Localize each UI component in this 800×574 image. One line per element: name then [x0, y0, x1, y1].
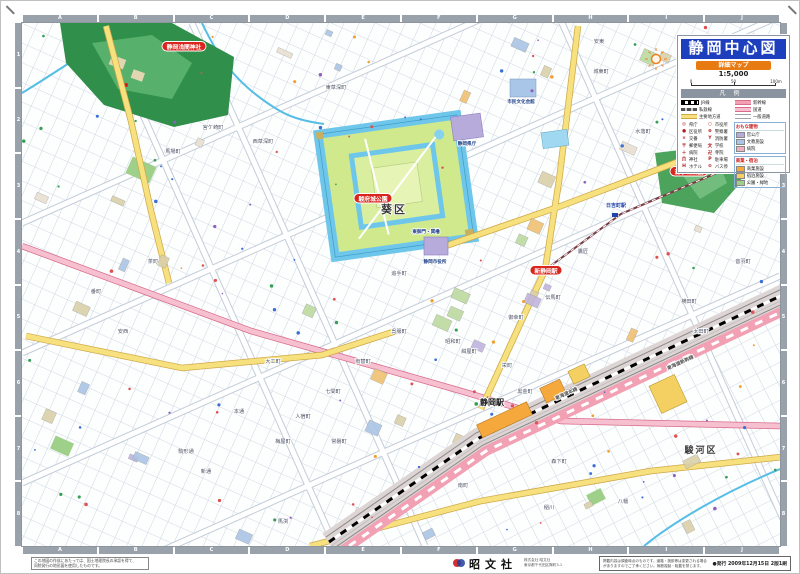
legend-symbol-label: 寺院 — [715, 150, 724, 156]
svg-text:静岡浅間神社: 静岡浅間神社 — [167, 43, 202, 51]
legend-symbol-item: 文学校 — [707, 143, 731, 149]
poi-dot-icon — [410, 383, 413, 386]
map-canvas: 呉服町紺屋町御幸町伝馬町鷹匠両替町七間町人宿町梅屋町常磐町駒形通本通新通大工町安… — [22, 23, 780, 546]
grid-col-label: B — [99, 15, 173, 22]
poi-dot-icon — [725, 476, 728, 479]
poi-dot-icon — [96, 115, 99, 118]
legend-area-item: 商業施設 — [736, 166, 784, 172]
grid-row-label: 1 — [15, 23, 22, 87]
legend-symbol-label: 学校 — [715, 143, 724, 149]
grid-strip-left: 12345678 — [15, 23, 22, 546]
poi-dot-icon — [319, 73, 322, 76]
town-name-label: 紺屋町 — [461, 347, 477, 355]
grid-strip-top: ABCDEFGHIJ — [23, 15, 779, 22]
scale-bar: 0 50 100m — [691, 79, 776, 88]
poi-dot-icon — [79, 426, 82, 429]
town-name-label: 本通 — [234, 407, 245, 415]
legend-symbol-icon: ◎ — [681, 122, 687, 127]
poi-dot-icon — [273, 308, 276, 311]
legend-symbol-item: ○市役所 — [707, 122, 731, 128]
city-pool — [541, 129, 569, 148]
poi-dot-icon — [160, 165, 162, 167]
grid-col-label: B — [99, 547, 173, 554]
grid-row-label: 8 — [780, 482, 787, 546]
grid-col-label: E — [326, 15, 400, 22]
legend-symbol-label: 市役所 — [715, 122, 728, 128]
poi-dot-icon — [522, 300, 525, 303]
legend-symbol-item: 〒郵便局 — [681, 143, 705, 149]
grid-row-label: 6 — [780, 351, 787, 415]
legend-symbol-label: 郵便局 — [689, 143, 702, 149]
grid-col-label: A — [23, 15, 97, 22]
town-name-label: 伝馬町 — [545, 293, 561, 301]
town-name-label: 大工町 — [265, 357, 281, 365]
poi-dot-icon — [34, 449, 36, 451]
poi-dot-icon — [57, 185, 59, 187]
town-name-label: 馬渕 — [278, 517, 288, 525]
publisher-name: 昭文社 — [469, 556, 517, 572]
legend-line-items: JR線新幹線私鉄線国道主要地方道一般道路 — [681, 100, 786, 120]
sunpu-castle-park — [316, 113, 474, 258]
poi-dot-icon — [218, 499, 221, 502]
town-name-label: 追手町 — [391, 269, 407, 277]
legend-symbol-item: ●区役所 — [681, 129, 705, 135]
poi-dot-icon — [704, 26, 707, 29]
poi-dot-icon — [212, 36, 214, 38]
poi-dot-icon — [134, 120, 136, 122]
poi-dot-icon — [540, 522, 542, 524]
poi-dot-icon — [674, 434, 677, 437]
poi-dot-icon — [202, 264, 205, 267]
legend-symbol-item: Y消防署 — [707, 136, 731, 142]
legend-symbol-label: 神社 — [689, 157, 698, 163]
town-name-label: 御幸町 — [508, 313, 524, 321]
grid-col-label: F — [402, 547, 476, 554]
town-name-label: 八幡 — [618, 497, 629, 505]
poi-dot-icon — [213, 225, 216, 228]
grid-row-label: 4 — [780, 220, 787, 284]
svg-text:新静岡駅: 新静岡駅 — [534, 267, 557, 275]
poi-dot-icon — [214, 279, 217, 282]
town-name-label: 駒形通 — [178, 447, 194, 455]
legend-symbol-icon: 卍 — [707, 150, 713, 156]
legend-area-label: 商業施設 — [747, 166, 764, 172]
legend-symbol-icon: 文 — [707, 143, 713, 149]
grid-row-label: 7 — [15, 417, 22, 481]
grid-col-label: G — [478, 15, 552, 22]
legend-area-label: 公園・緑地 — [747, 180, 768, 186]
grid-col-label: I — [629, 547, 703, 554]
legend-line-label: 国道 — [753, 107, 762, 113]
legend-symbol-icon: ⊙ — [707, 164, 713, 169]
grid-col-label: A — [23, 547, 97, 554]
poi-dot-icon — [371, 517, 373, 519]
publisher-address-line: 東京都千代田区麹町3-1 — [524, 563, 596, 568]
legend-symbol-icon: × — [681, 136, 687, 141]
civic-facility-label: 静岡市役所 — [424, 258, 447, 265]
poi-dot-icon — [216, 411, 219, 414]
poi-dot-icon — [473, 390, 476, 393]
grid-col-label: C — [175, 547, 249, 554]
poi-dot-icon — [370, 125, 373, 128]
poi-dot-icon — [78, 495, 81, 498]
town-name-label: 稲川 — [544, 503, 554, 511]
poi-dot-icon — [634, 43, 637, 46]
poi-dot-icon — [84, 503, 88, 507]
poi-dot-icon — [110, 269, 114, 273]
map-title: 静岡中心図 — [681, 39, 786, 59]
poi-dot-icon — [455, 328, 458, 331]
poi-dot-icon — [339, 399, 341, 401]
station-name-label: 日吉町駅 — [606, 202, 626, 209]
poi-dot-icon — [241, 248, 243, 250]
legend-header: 凡例 — [681, 89, 786, 98]
poi-dot-icon — [420, 118, 422, 120]
poi-dot-icon — [290, 517, 292, 519]
title-legend-box: 静岡中心図 詳細マップ 1:5,000 0 50 100m 凡例 JR線新幹線私… — [677, 35, 790, 173]
legend-line-item: 私鉄線 — [681, 107, 732, 113]
poi-dot-icon — [641, 496, 643, 498]
grid-row-label: 8 — [15, 482, 22, 546]
poi-dot-icon — [621, 144, 624, 147]
legend-line-label: 主要地方道 — [699, 114, 720, 120]
poi-dot-icon — [42, 35, 45, 38]
legend-area-label: 官公庁 — [747, 132, 760, 138]
legend-line-item: 国道 — [735, 107, 786, 113]
poi-dot-icon — [743, 426, 746, 429]
poi-dot-icon — [276, 151, 278, 153]
poi-dot-icon — [335, 321, 338, 324]
hiyoshicho-station-marker — [612, 213, 618, 217]
landmark-red-label: 静岡浅間神社 — [162, 42, 206, 52]
legend-line-item: 新幹線 — [735, 100, 786, 106]
poi-dot-icon — [222, 293, 224, 295]
poi-dot-icon — [181, 267, 183, 269]
town-name-label: 鷹匠 — [578, 247, 588, 255]
legend-line-label: 一般道路 — [753, 114, 770, 120]
legend-line-sample-icon — [735, 107, 751, 112]
poi-dot-icon — [506, 529, 508, 531]
poi-dot-icon — [753, 344, 755, 346]
legend-line-item: JR線 — [681, 100, 732, 106]
legend-symbol-label: ホテル — [689, 164, 702, 170]
poi-dot-icon — [348, 136, 350, 138]
poi-dot-icon — [655, 256, 658, 259]
grid-col-label: J — [705, 547, 779, 554]
town-name-label: 南町 — [458, 481, 468, 489]
svg-text:駿府城公園: 駿府城公園 — [359, 195, 388, 203]
legend-line-item: 主要地方道 — [681, 114, 732, 120]
legend-symbol-label: 消防署 — [715, 136, 728, 142]
town-name-label: 西草深町 — [253, 137, 274, 145]
town-name-label: 横田町 — [681, 297, 697, 305]
poi-dot-icon — [532, 55, 534, 57]
grid-row-label: 6 — [15, 351, 22, 415]
map-sheet: ABCDEFGHIJ ABCDEFGHIJ 12345678 12345678 — [0, 0, 800, 574]
legend-symbol-label: 区役所 — [689, 129, 702, 135]
town-name-label: 番町 — [91, 288, 101, 295]
scale-tick: 100m — [770, 79, 782, 84]
legend-symbol-item: P駐車場 — [707, 157, 731, 163]
ward-name-label: 駿河区 — [684, 444, 717, 456]
poi-dot-icon — [530, 89, 533, 92]
grid-row-label: 2 — [15, 89, 22, 153]
legend-color-chip — [736, 180, 745, 186]
legend-line-item: 一般道路 — [735, 114, 786, 120]
poi-dot-icon — [751, 310, 755, 314]
legend-line-label: 私鉄線 — [699, 107, 712, 113]
legend-area-item: 公園・緑地 — [736, 180, 784, 186]
legend-symbol-item: Hホテル — [681, 164, 705, 170]
shobunsha-logo-icon — [453, 557, 465, 569]
poi-dot-icon — [673, 474, 676, 477]
grid-col-label: E — [326, 547, 400, 554]
poi-dot-icon — [692, 267, 695, 270]
poi-dot-icon — [537, 39, 539, 41]
map-scale: 1:5,000 — [681, 71, 786, 79]
town-name-label: 新通 — [201, 467, 212, 475]
poi-dot-icon — [480, 259, 482, 261]
grid-col-label: H — [554, 15, 628, 22]
poi-dot-icon — [173, 121, 176, 124]
poi-dot-icon — [511, 404, 514, 407]
town-name-label: 音羽町 — [735, 257, 751, 265]
grid-col-label: J — [705, 15, 779, 22]
town-name-label: 宮ケ崎町 — [203, 123, 224, 131]
landmark-red-label: 駿府城公園 — [354, 194, 392, 204]
legend-area-group: おもな建物官公庁文教施設病院 — [734, 122, 786, 154]
grid-strip-bottom: ABCDEFGHIJ — [23, 547, 779, 554]
ward-name-label: 葵区 — [380, 202, 407, 216]
civic-facility-label: 市民文化会館 — [507, 98, 535, 105]
poi-dot-icon — [319, 126, 322, 129]
legend-symbol-icon: P — [707, 157, 713, 162]
legend-symbol-icon: ∏ — [681, 157, 687, 162]
legend-group-header: 商業・宿泊 — [736, 158, 784, 165]
prefectural-office-building — [450, 113, 483, 141]
legend-symbol-items: ◎県庁○市役所●区役所⊗警察署×交番Y消防署〒郵便局文学校＋病院卍寺院∏神社P駐… — [681, 122, 731, 188]
poi-dot-icon — [760, 280, 763, 283]
legend-symbol-item: 卍寺院 — [707, 150, 731, 156]
city-map-svg: 呉服町紺屋町御幸町伝馬町鷹匠両替町七間町人宿町梅屋町常磐町駒形通本通新通大工町安… — [22, 23, 780, 546]
poi-dot-icon — [655, 121, 658, 124]
legend-symbol-label: 病院 — [689, 150, 698, 156]
legend-color-chip — [736, 146, 745, 152]
approval-note-box: この地図の作成にあたっては、国土地理院長の承認を得て、 同院発行の地形図を使用し… — [31, 557, 149, 570]
grid-col-label: D — [250, 15, 324, 22]
poi-dot-icon — [59, 493, 62, 496]
poi-dot-icon — [249, 204, 251, 206]
legend-line-sample-icon — [681, 100, 699, 105]
poi-dot-icon — [154, 159, 157, 162]
city-hall-building — [424, 237, 448, 255]
town-name-label: 東草深町 — [326, 83, 347, 91]
grid-row-label: 5 — [780, 286, 787, 350]
poi-dot-icon — [643, 481, 645, 483]
legend-symbol-item: ⊗警察署 — [707, 129, 731, 135]
poi-dot-icon — [661, 118, 663, 120]
issue-date: ●発行 2009年12月15日 2版1刷 — [713, 560, 787, 567]
poi-dot-icon — [296, 331, 300, 335]
legend-area-group: 商業・宿泊商業施設宿泊施設公園・緑地 — [734, 156, 786, 188]
legend-symbol-item: ∏神社 — [681, 157, 705, 163]
poi-dot-icon — [404, 116, 406, 118]
poi-dot-icon — [374, 455, 377, 458]
poi-dot-icon — [418, 466, 420, 468]
civic-facility-label: 静岡県庁 — [458, 140, 477, 147]
poi-dot-icon — [728, 192, 730, 194]
town-name-label: 馬場町 — [165, 147, 181, 155]
civic-facility-label: 東御門・巽櫓 — [412, 228, 440, 235]
poi-dot-icon — [666, 252, 669, 255]
legend-symbol-label: 交番 — [689, 136, 698, 142]
landmark-red-label: 新静岡駅 — [530, 266, 562, 276]
grid-col-label: F — [402, 15, 476, 22]
grid-col-label: H — [554, 547, 628, 554]
poi-dot-icon — [737, 453, 740, 456]
grid-row-label: 7 — [780, 417, 787, 481]
poi-dot-icon — [270, 284, 273, 287]
grid-col-label: I — [629, 15, 703, 22]
legend-symbol-icon: ＋ — [681, 150, 687, 156]
poi-dot-icon — [293, 80, 296, 83]
poi-dot-icon — [39, 127, 42, 130]
hitsujisaru-turret — [316, 132, 324, 140]
poi-dot-icon — [28, 359, 31, 362]
town-name-label: 水落町 — [635, 127, 651, 135]
grid-row-label: 3 — [15, 154, 22, 218]
notice-box: 掲載内容は調査時点のものです。道路・施設等は変更される場合がありますのでご了承く… — [599, 556, 791, 571]
town-name-label: 常磐町 — [331, 437, 347, 445]
legend-symbol-icon: ● — [681, 129, 687, 134]
legend-area-item: 宿泊施設 — [736, 173, 784, 179]
legend-symbol-icon: H — [681, 164, 687, 169]
legend-line-label: 新幹線 — [753, 100, 766, 106]
grid-col-label: C — [175, 15, 249, 22]
notice-text: 掲載内容は調査時点のものです。道路・施設等は変更される場合がありますのでご了承く… — [603, 559, 710, 568]
legend-symbol-icon: ○ — [707, 122, 713, 127]
grid-row-label: 4 — [15, 220, 22, 284]
poi-dot-icon — [604, 391, 606, 393]
town-name-label: 太田町 — [693, 327, 709, 335]
poi-dot-icon — [128, 388, 131, 391]
poi-dot-icon — [353, 35, 356, 38]
town-name-label: 安西 — [118, 327, 128, 335]
detail-map-badge: 詳細マップ — [696, 61, 772, 70]
poi-dot-icon — [333, 298, 336, 301]
poi-dot-icon — [474, 402, 478, 406]
legend-symbol-item: ＋病院 — [681, 150, 705, 156]
legend-symbol-icon: ⊗ — [707, 129, 713, 134]
footer: この地図の作成にあたっては、国土地理院長の承認を得て、 同院発行の地形図を使用し… — [1, 554, 800, 574]
town-name-label: 人宿町 — [295, 412, 311, 420]
town-name-label: 栄町 — [502, 361, 512, 369]
poi-dot-icon — [533, 71, 535, 73]
poi-dot-icon — [583, 181, 586, 184]
publisher-address: 株式会社 昭文社 東京都千代田区麹町3-1 — [524, 558, 596, 567]
poi-dot-icon — [713, 507, 717, 511]
poi-dot-icon — [591, 414, 594, 417]
approval-line: 同院発行の地形図を使用したものです。 — [34, 564, 146, 569]
poi-dot-icon — [535, 421, 538, 424]
legend-line-sample-icon — [681, 114, 697, 119]
culture-hall-building — [510, 79, 536, 97]
legend-body: JR線新幹線私鉄線国道主要地方道一般道路 ◎県庁○市役所●区役所⊗警察署×交番Y… — [681, 100, 786, 188]
town-name-label: 城東町 — [593, 67, 609, 75]
legend-line-label: JR線 — [701, 100, 710, 106]
legend-group-header: おもな建物 — [736, 124, 784, 131]
town-name-label: 森下町 — [551, 457, 567, 465]
poi-dot-icon — [607, 450, 610, 453]
poi-dot-icon — [171, 178, 173, 180]
poi-dot-icon — [352, 503, 355, 506]
legend-symbol-label: 駐車場 — [715, 157, 728, 163]
town-name-label: 七間町 — [325, 387, 341, 395]
poi-dot-icon — [441, 166, 443, 168]
legend-symbol-label: バス停 — [715, 164, 728, 170]
grid-col-label: D — [250, 547, 324, 554]
legend-color-chip — [736, 173, 745, 179]
legend-area-item: 官公庁 — [736, 132, 784, 138]
poi-dot-icon — [500, 69, 503, 72]
legend-symbol-item: ×交番 — [681, 136, 705, 142]
legend-line-sample-icon — [681, 108, 697, 111]
legend-symbol-item: ◎県庁 — [681, 122, 705, 128]
town-name-label: 呉服町 — [391, 328, 407, 335]
poi-dot-icon — [490, 413, 493, 416]
legend-color-chip — [736, 132, 745, 138]
town-name-label: 昭和町 — [445, 337, 461, 345]
legend-color-chip — [736, 166, 745, 172]
poi-dot-icon — [217, 403, 220, 406]
legend-area-label: 宿泊施設 — [747, 173, 764, 179]
legend-line-sample-icon — [735, 100, 751, 105]
town-name-label: 黒金町 — [517, 387, 533, 395]
town-name-label: 両替町 — [355, 357, 371, 365]
poi-dot-icon — [168, 412, 170, 414]
legend-symbol-label: 県庁 — [689, 122, 698, 128]
poi-dot-icon — [293, 259, 295, 261]
legend-line-sample-icon — [735, 114, 751, 119]
legend-area-item: 病院 — [736, 146, 784, 152]
legend-area-item: 文教施設 — [736, 139, 784, 145]
corner-mark-icon — [6, 5, 15, 14]
town-name-label: 梅屋町 — [275, 437, 291, 445]
legend-symbol-icon: 〒 — [681, 143, 687, 149]
poi-dot-icon — [592, 464, 595, 467]
poi-dot-icon — [739, 385, 742, 388]
poi-dot-icon — [154, 200, 158, 204]
corner-mark-icon — [788, 5, 797, 14]
poi-dot-icon — [774, 469, 777, 472]
poi-dot-icon — [22, 139, 25, 142]
legend-area-label: 病院 — [747, 146, 756, 152]
legend-area-groups: おもな建物官公庁文教施設病院商業・宿泊商業施設宿泊施設公園・緑地 — [734, 122, 786, 188]
poi-dot-icon — [434, 358, 437, 361]
poi-dot-icon — [589, 472, 592, 475]
poi-dot-icon — [367, 61, 370, 64]
poi-dot-icon — [273, 518, 276, 521]
legend-color-chip — [736, 139, 745, 145]
grid-col-label: G — [478, 547, 552, 554]
poi-dot-icon — [492, 340, 495, 343]
poi-dot-icon — [430, 299, 433, 302]
poi-dot-icon — [200, 72, 202, 74]
legend-symbol-label: 警察署 — [715, 129, 728, 135]
poi-dot-icon — [706, 419, 708, 421]
town-name-label: 安東 — [594, 37, 604, 45]
poi-dot-icon — [335, 183, 337, 185]
